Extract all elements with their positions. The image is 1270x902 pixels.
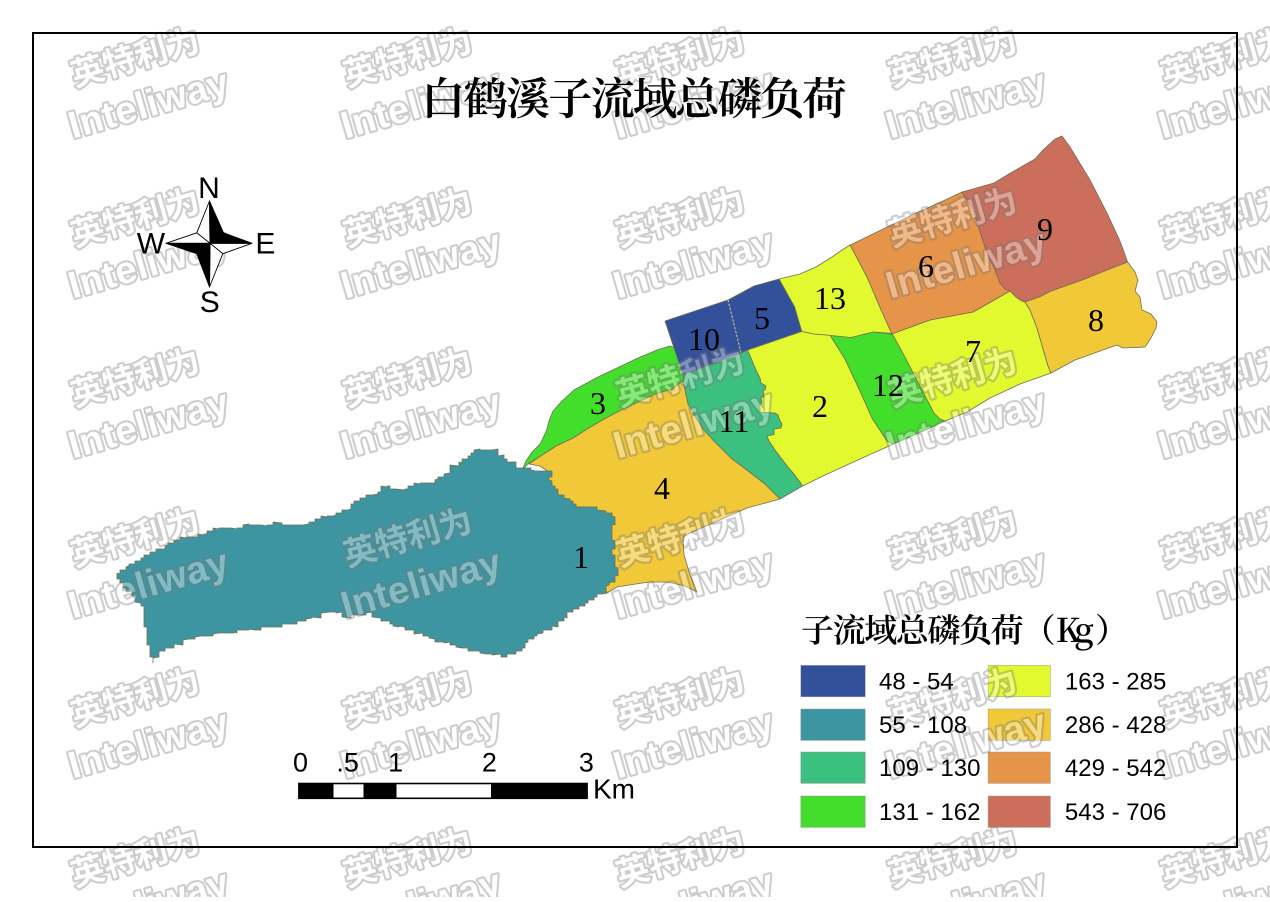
svg-text:12: 12 [872,367,904,403]
svg-text:N: N [198,172,220,205]
svg-text:3: 3 [579,748,594,778]
svg-text:.5: .5 [336,748,359,778]
svg-text:10: 10 [688,321,720,357]
svg-text:E: E [255,228,275,261]
svg-text:W: W [137,228,166,261]
svg-text:6: 6 [918,248,934,284]
svg-text:5: 5 [754,300,770,336]
svg-text:131 - 162: 131 - 162 [879,799,980,826]
svg-text:1: 1 [573,539,589,575]
svg-text:109 - 130: 109 - 130 [879,755,980,782]
svg-text:11: 11 [719,403,750,439]
svg-text:429 - 542: 429 - 542 [1065,755,1166,782]
svg-text:9: 9 [1037,211,1053,247]
svg-text:48 - 54: 48 - 54 [879,669,954,696]
svg-text:2: 2 [482,748,497,778]
svg-text:2: 2 [812,388,828,424]
svg-text:1: 1 [388,748,403,778]
svg-text:3: 3 [590,385,606,421]
svg-text:55 - 108: 55 - 108 [879,712,967,739]
svg-text:S: S [200,286,220,319]
svg-text:286 - 428: 286 - 428 [1065,712,1166,739]
svg-text:8: 8 [1088,302,1104,338]
svg-text:0: 0 [293,748,308,778]
svg-text:163 - 285: 163 - 285 [1065,669,1166,696]
svg-text:Km: Km [593,774,635,805]
svg-text:13: 13 [814,280,846,316]
svg-text:7: 7 [965,333,981,369]
svg-text:543 - 706: 543 - 706 [1065,799,1166,826]
svg-text:4: 4 [654,470,670,506]
